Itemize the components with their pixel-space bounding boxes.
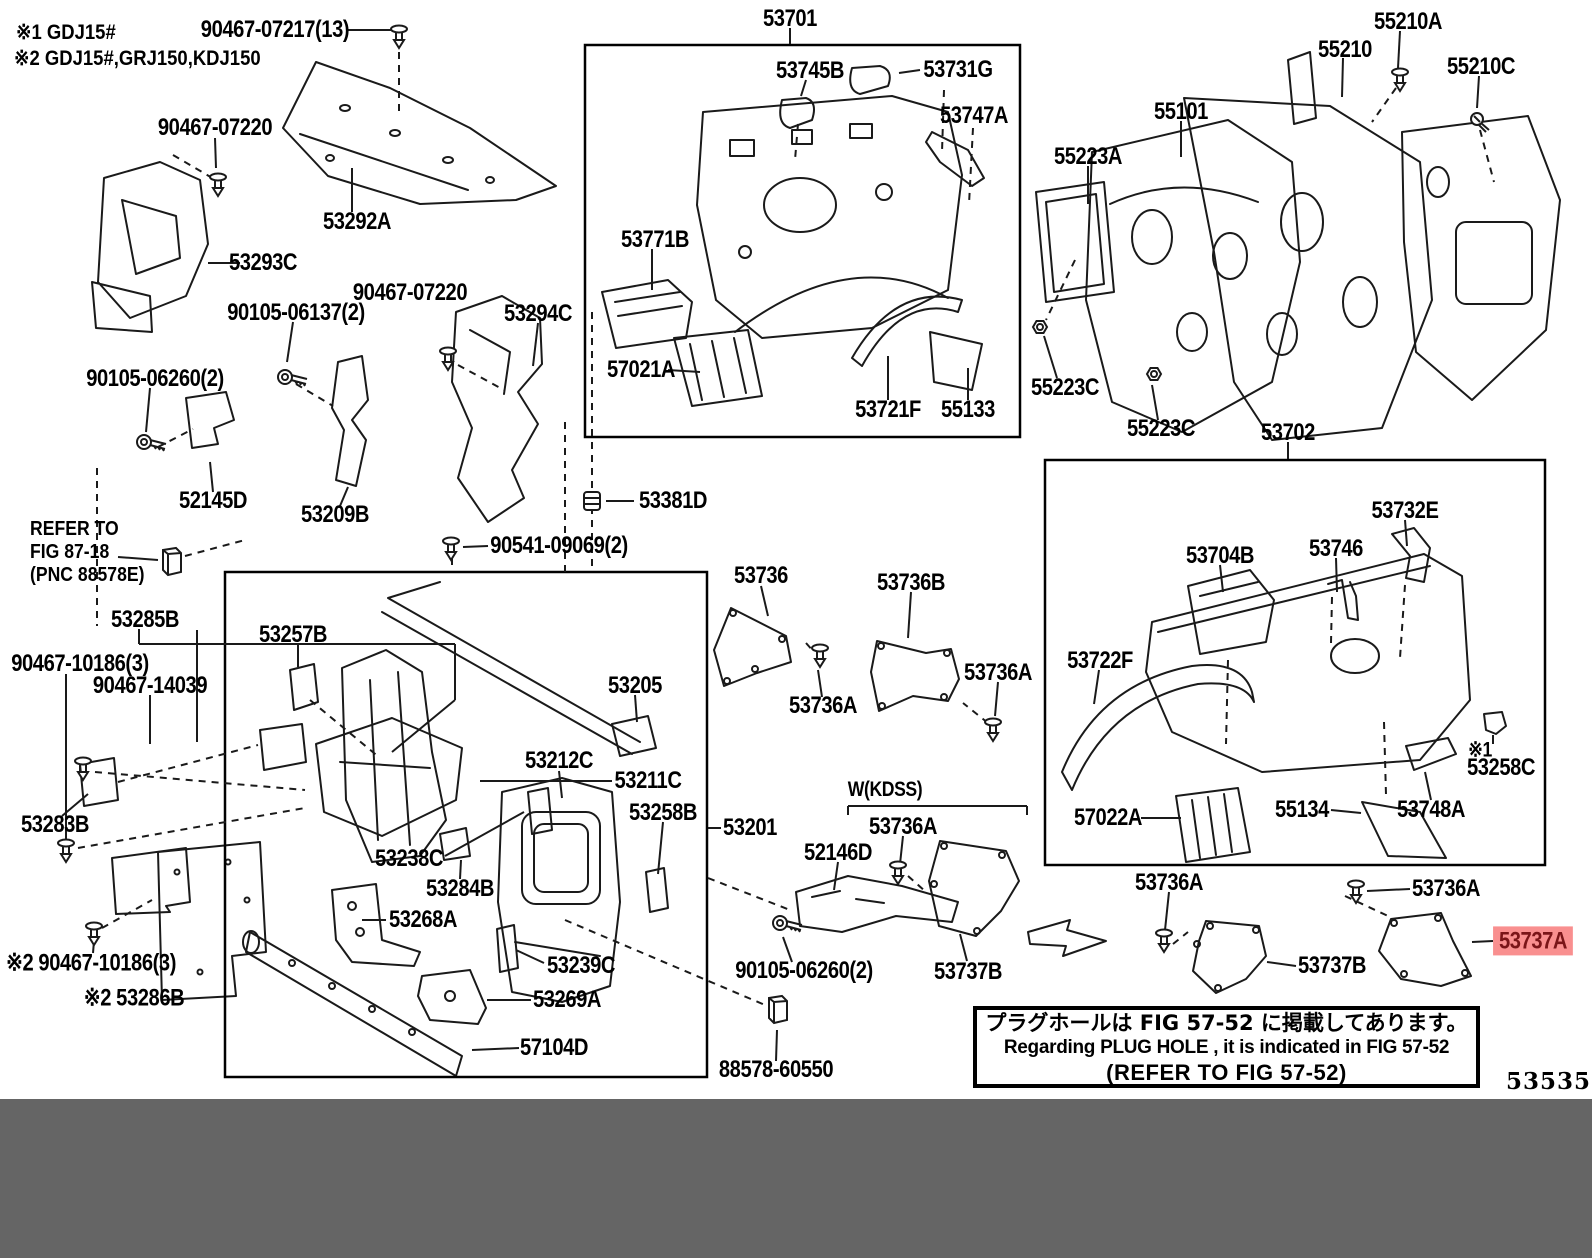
part-label-53737B[interactable]: 53737B — [1298, 952, 1366, 980]
dashed-line — [963, 703, 988, 723]
leader-line — [995, 682, 998, 716]
part-label-53201[interactable]: 53201 — [723, 814, 777, 842]
part-label-53736[interactable]: 53736 — [734, 562, 788, 590]
part-label-53292A[interactable]: 53292A — [323, 208, 391, 236]
leader-line — [908, 592, 911, 638]
sketch-57022a — [1176, 788, 1250, 862]
bolt-icon — [137, 435, 166, 451]
part-sketches — [80, 52, 1560, 1076]
part-label-53211C[interactable]: 53211C — [615, 767, 682, 795]
sketch-57021a — [674, 330, 762, 406]
part-label-55223A[interactable]: 55223A — [1054, 143, 1122, 171]
part-label-53294C[interactable]: 53294C — [504, 300, 572, 328]
leader-line — [215, 138, 216, 168]
part-label-53285B[interactable]: 53285B — [111, 606, 179, 634]
footer-bar: TOYOTA - 5388560030 N - 53737A — [0, 1099, 1592, 1258]
part-label-9046714039[interactable]: 90467-14039 — [93, 672, 207, 700]
leader-line — [1398, 31, 1400, 68]
part-label-53745B[interactable]: 53745B — [776, 57, 844, 85]
sketch-55210 — [1184, 52, 1432, 440]
sketch-53748a — [1406, 738, 1456, 770]
clip-icon — [443, 538, 459, 561]
part-label-53381D[interactable]: 53381D — [639, 487, 707, 515]
dashed-line — [173, 155, 214, 179]
clip-icon — [1348, 881, 1364, 904]
leader-line — [658, 822, 663, 874]
clip-icon — [1156, 930, 1172, 953]
clip-icon — [985, 719, 1001, 742]
nut-icon — [1147, 368, 1161, 380]
part-label-53284B[interactable]: 53284B — [426, 875, 494, 903]
sketch-53722f — [1062, 665, 1254, 790]
leader-line — [146, 388, 150, 432]
leader-line — [287, 322, 293, 362]
leader-line — [1367, 889, 1410, 891]
dashed-line — [969, 128, 973, 204]
sketch-57104d — [246, 932, 462, 1076]
dashed-line — [95, 772, 305, 790]
sketch-apron-assembly — [697, 96, 962, 338]
bolt-icon — [278, 370, 307, 386]
part-label-290467101863[interactable]: ※2 90467-10186(3) — [6, 949, 176, 978]
part-label-90105062602[interactable]: 90105-06260(2) — [735, 957, 873, 985]
leader-line — [899, 70, 920, 73]
refer-note-line1: REFER TO — [30, 518, 144, 541]
part-label-53747A[interactable]: 53747A — [940, 102, 1008, 130]
part-label-53746[interactable]: 53746 — [1309, 535, 1363, 563]
fastener-icons — [58, 26, 1489, 1024]
part-label-53704B[interactable]: 53704B — [1186, 542, 1254, 570]
refer-note: REFER TO FIG 87-18 (PNC 88578E) — [30, 518, 144, 587]
part-label-53239C[interactable]: 53239C — [547, 952, 615, 980]
clip-icon — [1392, 69, 1408, 92]
part-label-53702[interactable]: 53702 — [1261, 419, 1315, 447]
part-label-53268A[interactable]: 53268A — [389, 906, 457, 934]
sketch-engine-under-cover — [283, 62, 556, 204]
screw-icon — [1471, 113, 1489, 132]
sketch-53258c — [1484, 712, 1506, 734]
dashed-line — [458, 365, 504, 390]
part-label-53722F[interactable]: 53722F — [1067, 647, 1133, 675]
sketch-53205 — [612, 716, 656, 756]
part-label-57022A[interactable]: 57022A — [1074, 804, 1142, 832]
dashed-line — [78, 808, 305, 848]
part-label-52146D[interactable]: 52146D — [804, 839, 872, 867]
leader-line — [463, 546, 488, 547]
part-label-55223C[interactable]: 55223C — [1127, 415, 1195, 443]
part-label-55210[interactable]: 55210 — [1318, 36, 1372, 64]
sketch-53737a-highlighted-part — [1379, 913, 1471, 986]
sketch-53293c — [92, 162, 208, 332]
leader-line — [1044, 336, 1057, 378]
part-label-9046707220[interactable]: 90467-07220 — [158, 114, 272, 142]
dashed-line — [1331, 597, 1332, 643]
direction-arrow — [1028, 920, 1106, 956]
clip-icon — [86, 923, 102, 946]
part-label-55101[interactable]: 55101 — [1154, 98, 1208, 126]
part-label-53731G[interactable]: 53731G — [923, 56, 992, 84]
part-label-55134[interactable]: 55134 — [1275, 796, 1329, 824]
clip-icon — [391, 26, 407, 49]
clip-icon — [58, 840, 74, 863]
sketch-53294c — [452, 296, 542, 522]
part-label-53748A[interactable]: 53748A — [1397, 796, 1465, 824]
part-label-8857860550[interactable]: 88578-60550 — [719, 1056, 833, 1084]
clip-icon — [890, 862, 906, 885]
part-label-53736A[interactable]: 53736A — [1412, 875, 1480, 903]
leader-line — [1094, 670, 1099, 704]
dashed-line — [1400, 585, 1405, 658]
part-label-904670721713[interactable]: 90467-07217(13) — [201, 16, 349, 44]
sketch-55133 — [930, 332, 982, 390]
leader-line — [559, 771, 562, 798]
dashed-line — [1384, 722, 1386, 795]
leader-line — [761, 586, 768, 616]
leader-line — [445, 812, 524, 856]
sketch-53731g — [850, 66, 890, 94]
part-label-53212C[interactable]: 53212C — [525, 747, 593, 775]
sketch-53285b — [316, 718, 462, 836]
sketch-53209b — [332, 356, 368, 486]
bolt-icon — [773, 916, 802, 932]
plug-hole-note-box: プラグホールは FIG 57-52 に掲載してあります。 Regarding P… — [973, 1006, 1480, 1088]
part-label-53736A[interactable]: 53736A — [1135, 869, 1203, 897]
part-label-53258C[interactable]: 53258C — [1467, 754, 1535, 782]
parts-diagram-page: ※1 GDJ15# ※2 GDJ15#,GRJ150,KDJ150 REFER … — [0, 0, 1592, 1258]
part-label-57104D[interactable]: 57104D — [520, 1034, 588, 1062]
dashed-line — [185, 540, 245, 556]
part-label-53736A[interactable]: 53736A — [789, 692, 857, 720]
part-label-53732E[interactable]: 53732E — [1372, 497, 1439, 525]
part-label-253286B[interactable]: ※2 53286B — [84, 984, 185, 1013]
sketch-53721f — [852, 297, 962, 366]
pad-icon — [769, 996, 787, 1023]
sketch-53704b — [1188, 570, 1274, 654]
dashed-line — [1173, 932, 1188, 944]
leader-line — [960, 934, 967, 961]
part-label-53737B[interactable]: 53737B — [934, 958, 1002, 986]
part-label-53736A[interactable]: 53736A — [869, 813, 937, 841]
sketch-55223a — [1036, 182, 1114, 302]
part-label-53736B[interactable]: 53736B — [877, 569, 945, 597]
leader-line — [1165, 892, 1169, 930]
part-label-90105062602[interactable]: 90105-06260(2) — [86, 365, 224, 393]
pad-icon — [163, 548, 181, 575]
dashed-line — [1345, 896, 1388, 916]
part-label-WKDSS[interactable]: W(KDSS) — [848, 778, 922, 802]
part-label-53205[interactable]: 53205 — [608, 672, 662, 700]
sketch-53269a — [418, 970, 486, 1024]
leader-line — [1472, 941, 1493, 942]
sketch-52145d — [186, 392, 234, 448]
variant-note-2: ※2 GDJ15#,GRJ150,KDJ150 — [14, 46, 261, 71]
leader-line — [1336, 558, 1337, 592]
leader-line — [1331, 810, 1361, 813]
part-label-53721F[interactable]: 53721F — [855, 396, 921, 424]
figure-code: 535359A — [1506, 1068, 1592, 1095]
clip-icon — [75, 758, 91, 781]
part-label-55210A[interactable]: 55210A — [1374, 8, 1442, 36]
part-label-53701[interactable]: 53701 — [763, 5, 817, 33]
part-label-53283B[interactable]: 53283B — [21, 811, 89, 839]
grommet-icon — [584, 492, 600, 510]
part-label-55223C[interactable]: 55223C — [1031, 374, 1099, 402]
part-label-53209B[interactable]: 53209B — [301, 501, 369, 529]
part-label-53737A-highlighted[interactable]: 53737A — [1493, 926, 1573, 955]
part-label-55133[interactable]: 55133 — [941, 396, 995, 424]
sketch-53283b — [80, 724, 306, 806]
dashed-line — [708, 878, 790, 910]
leader-line — [472, 1048, 519, 1050]
part-label-90105061372[interactable]: 90105-06137(2) — [227, 299, 365, 327]
part-label-53258B[interactable]: 53258B — [629, 799, 697, 827]
nut-icon — [1033, 321, 1047, 333]
dashed-line — [1226, 660, 1228, 744]
part-label-53736A[interactable]: 53736A — [964, 659, 1032, 687]
variant-note-1: ※1 GDJ15# — [16, 20, 116, 45]
sketch-53258b — [646, 868, 668, 912]
clip-icon — [210, 174, 226, 197]
part-label-9046707220[interactable]: 90467-07220 — [353, 279, 467, 307]
sketch-53736 — [714, 608, 791, 686]
plug-note-japanese: プラグホールは FIG 57-52 に掲載してあります。 — [985, 1010, 1467, 1036]
part-label-90541090692[interactable]: 90541-09069(2) — [490, 532, 628, 560]
refer-note-line2: FIG 87-18 — [30, 541, 144, 564]
leader-line — [516, 950, 544, 963]
dashed-line — [102, 900, 152, 928]
part-label-57021A[interactable]: 57021A — [607, 356, 675, 384]
dashed-line — [1480, 130, 1494, 182]
part-label-53269A[interactable]: 53269A — [533, 986, 601, 1014]
sketch-apron-assembly-2 — [1146, 554, 1470, 772]
leader-line — [533, 323, 538, 366]
plug-note-refer: (REFER TO FIG 57-52) — [1106, 1060, 1347, 1085]
dashed-line — [1372, 88, 1396, 122]
part-label-53257B[interactable]: 53257B — [259, 621, 327, 649]
plug-note-english: Regarding PLUG HOLE , it is indicated in… — [1004, 1036, 1449, 1060]
part-label-53293C[interactable]: 53293C — [229, 249, 297, 277]
part-label-55210C[interactable]: 55210C — [1447, 53, 1515, 81]
sketch-mud-flap-a — [112, 848, 190, 914]
part-label-53771B[interactable]: 53771B — [621, 226, 689, 254]
refer-note-line3: (PNC 88578E) — [30, 564, 144, 587]
part-label-52145D[interactable]: 52145D — [179, 487, 247, 515]
sketch-dash-insulator — [1402, 116, 1560, 400]
clip-icon — [812, 645, 828, 668]
dashed-line — [296, 384, 333, 406]
part-label-53238C[interactable]: 53238C — [375, 845, 443, 873]
leader-line — [1267, 962, 1296, 966]
